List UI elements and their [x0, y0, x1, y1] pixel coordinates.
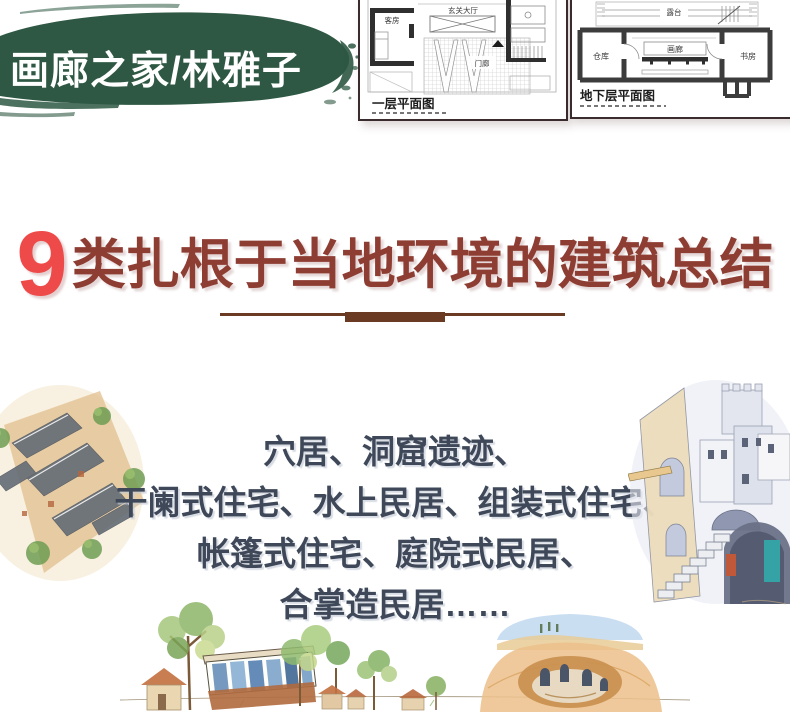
room-label-guest-room: 客房 [385, 15, 400, 25]
room-label-gallery: 画廊 [667, 44, 683, 54]
title-banner: 画廊之家/林雅子 [0, 0, 360, 130]
room-label-entrance-hall: 玄关大厅 [448, 5, 478, 15]
village-landscape-illustration [0, 598, 790, 712]
floor-plan-card-first-floor: 客房 玄关大厅 门廊 [358, 0, 568, 121]
room-label-study: 书房 [740, 51, 756, 61]
basement-plan-drawing: 露台 仓库 书房 [572, 0, 790, 117]
room-label-storage: 仓库 [593, 51, 609, 61]
stone-village-illustration [628, 378, 790, 606]
promo-page: 画廊之家/林雅子 客房 玄关大厅 [0, 0, 790, 712]
divider-bar [345, 312, 445, 322]
headline: 9类扎根于当地环境的建筑总结 [0, 224, 790, 305]
first-floor-plan-drawing: 客房 玄关大厅 门廊 [360, 0, 562, 119]
headline-number: 9 [16, 224, 67, 304]
headline-text: 类扎根于当地环境的建筑总结 [72, 225, 774, 305]
room-label-porch: 门廊 [475, 58, 490, 68]
banner-title: 画廊之家/林雅子 [10, 40, 350, 96]
plan-caption-first-floor: 一层平面图 [372, 97, 435, 111]
plan-caption-basement: 地下层平面图 [580, 88, 655, 103]
room-label-terrace: 露台 [667, 7, 682, 17]
floor-plan-card-basement: 露台 仓库 书房 [570, 0, 790, 119]
